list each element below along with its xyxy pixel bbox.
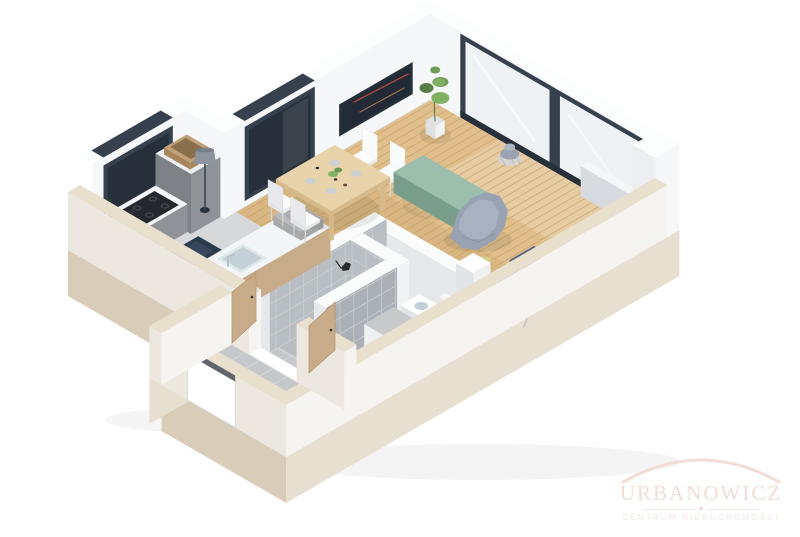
plate [329, 160, 340, 166]
plant-leaves [420, 83, 434, 93]
plate [351, 170, 362, 176]
plate [305, 178, 316, 184]
wall-west [149, 326, 161, 385]
floorplan-rendering [0, 0, 800, 537]
door-handle [251, 296, 254, 299]
table-plant [334, 168, 342, 173]
plant-leaves [434, 79, 446, 87]
plant-leaves [430, 67, 440, 74]
candle [343, 184, 347, 187]
bathroom-sink [414, 302, 428, 310]
table-leg [382, 183, 385, 212]
cup [334, 178, 338, 180]
blanket [504, 144, 515, 151]
lamp-shade [196, 148, 214, 153]
burner [163, 205, 168, 208]
plant-leaves [431, 92, 449, 104]
plate [326, 188, 337, 194]
wall-south-west [344, 345, 356, 410]
cup [316, 167, 320, 169]
floorplan-image: URBANOWICZ ◆ CENTRUM NIERUCHOMOŚCI [0, 0, 800, 537]
wall-south [286, 398, 298, 457]
wall-step [224, 126, 236, 219]
table-leg [331, 213, 334, 242]
burner [135, 207, 140, 210]
table-leg [329, 213, 332, 242]
burner [151, 198, 156, 201]
door-handle [330, 329, 333, 332]
burner [147, 214, 152, 217]
